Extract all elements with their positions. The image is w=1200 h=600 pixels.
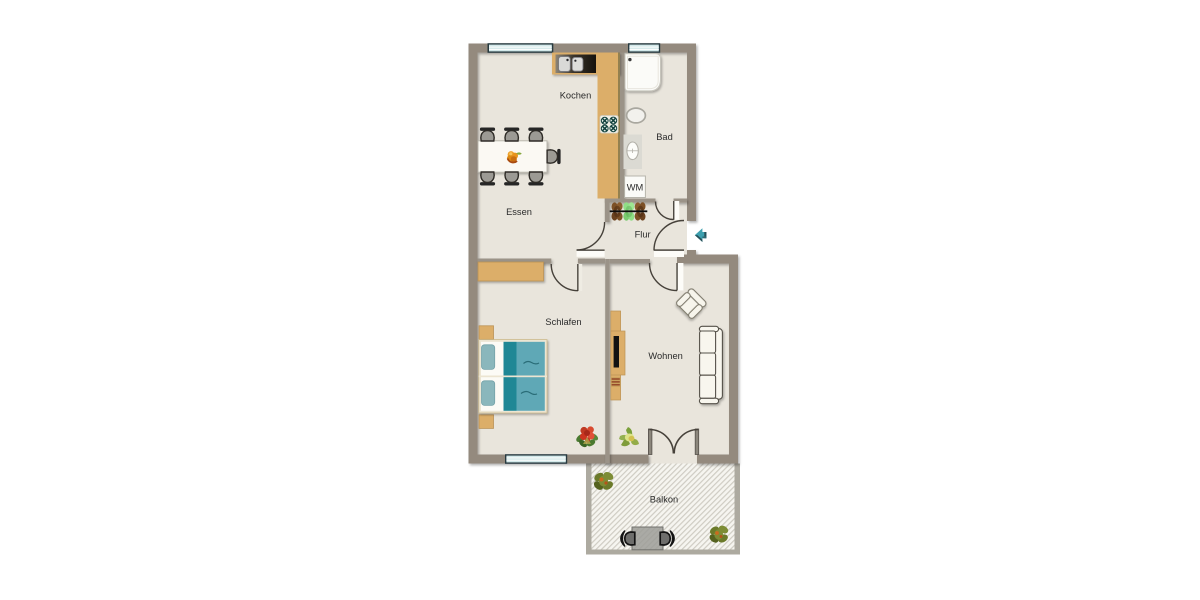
svg-text:Kochen: Kochen	[560, 90, 592, 100]
svg-text:Balkon: Balkon	[650, 494, 678, 504]
svg-text:Bad: Bad	[656, 132, 673, 142]
svg-text:Schlafen: Schlafen	[545, 317, 581, 327]
svg-text:Wohnen: Wohnen	[648, 351, 682, 361]
svg-text:Flur: Flur	[635, 229, 651, 239]
svg-text:WM: WM	[627, 183, 644, 193]
svg-text:Essen: Essen	[506, 207, 532, 217]
